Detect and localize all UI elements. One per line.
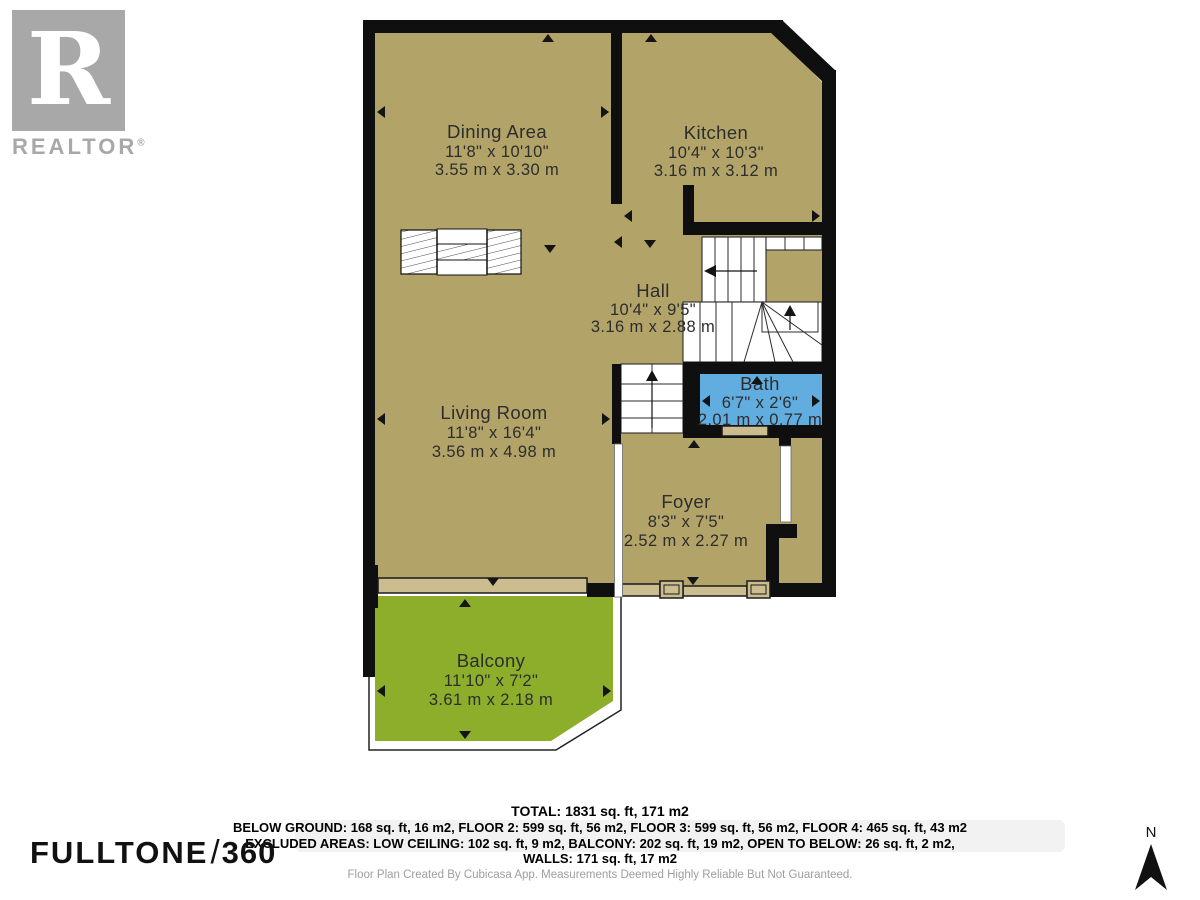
- entry-sidelight: [622, 584, 660, 596]
- floor-plan-drawing: Dining Area 11'8" x 10'10" 3.55 m x 3.30…: [0, 0, 1200, 900]
- hall-label: Hall: [636, 280, 669, 301]
- svg-text:3.16 m x 2.88 m: 3.16 m x 2.88 m: [591, 318, 715, 336]
- wall-kitchen-bottom: [683, 222, 836, 235]
- closet-door-leaf: [781, 446, 792, 522]
- wall-top: [363, 20, 783, 33]
- door-jamb-right: [747, 581, 770, 598]
- svg-text:2.52 m x 2.27 m: 2.52 m x 2.27 m: [624, 532, 748, 550]
- fulltone-slash: /: [208, 833, 221, 870]
- svg-text:11'8" x 10'10": 11'8" x 10'10": [445, 143, 549, 161]
- fulltone-360: 360: [222, 835, 277, 870]
- north-compass: N: [1128, 824, 1174, 892]
- wall-living-bottom: [587, 583, 615, 597]
- svg-text:3.55 m x 3.30 m: 3.55 m x 3.30 m: [435, 161, 559, 179]
- svg-text:8'3" x 7'5": 8'3" x 7'5": [648, 513, 725, 531]
- sliding-door: [378, 578, 587, 593]
- svg-text:10'4" x 9'5": 10'4" x 9'5": [610, 301, 696, 319]
- wall-right: [822, 70, 836, 597]
- svg-text:11'8" x 16'4": 11'8" x 16'4": [447, 424, 541, 442]
- chair-top: [437, 229, 487, 244]
- kitchen-label: Kitchen: [684, 122, 749, 143]
- balcony-label: Balcony: [457, 650, 526, 671]
- dining-table-and-chairs: [401, 229, 521, 275]
- floor-plan-page: R REALTOR®: [0, 0, 1200, 900]
- staircase-up-flight: [702, 237, 766, 302]
- north-label: N: [1128, 824, 1174, 841]
- door-jamb-left: [660, 581, 683, 598]
- staircase-top-landing: [766, 237, 822, 250]
- passage-door-leaf: [615, 444, 623, 597]
- foyer-label: Foyer: [661, 491, 710, 512]
- staircase-down-flight: [621, 364, 683, 433]
- north-arrow-icon: [1128, 842, 1174, 892]
- svg-text:6'7" x 2'6": 6'7" x 2'6": [722, 394, 799, 412]
- svg-text:10'4" x 10'3": 10'4" x 10'3": [668, 144, 764, 162]
- entry-door: [683, 586, 747, 596]
- dining-label: Dining Area: [447, 121, 547, 142]
- wall-closet-stub: [766, 524, 797, 538]
- svg-text:2.01 m x 0.77 m: 2.01 m x 0.77 m: [698, 411, 822, 429]
- fulltone-logo: FULLTONE/360: [30, 833, 276, 871]
- wall-door-stub: [779, 430, 791, 446]
- wall-living-corner: [363, 565, 378, 608]
- chair-bottom: [437, 260, 487, 275]
- living-room-label: Living Room: [440, 402, 547, 423]
- svg-text:11'10" x 7'2": 11'10" x 7'2": [444, 672, 538, 690]
- wall-stair-left: [612, 364, 621, 444]
- svg-text:3.56 m x 4.98 m: 3.56 m x 4.98 m: [432, 443, 556, 461]
- svg-text:3.61 m x 2.18 m: 3.61 m x 2.18 m: [429, 691, 553, 709]
- fulltone-wordmark: FULLTONE: [30, 835, 208, 870]
- summary-total: TOTAL: 1831 sq. ft, 171 m2: [0, 803, 1200, 819]
- svg-text:3.16 m x 3.12 m: 3.16 m x 3.12 m: [654, 162, 778, 180]
- wall-dining-kitchen: [611, 20, 622, 204]
